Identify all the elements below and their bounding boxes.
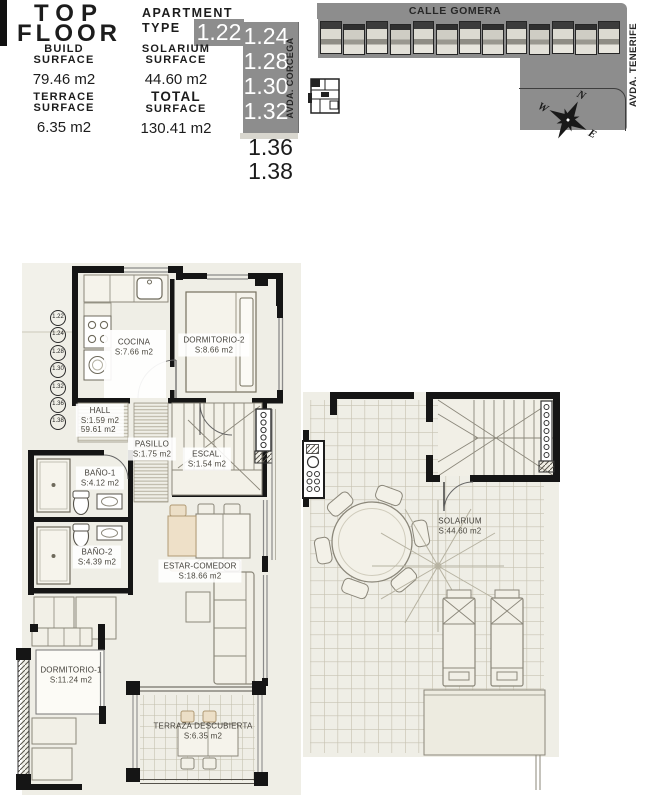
stat-solarium-surface: SOLARIUM SURFACE 44.60 m2 xyxy=(116,44,236,88)
unit-badge: 1.36 xyxy=(50,397,66,413)
room-label-solarium: SOLARIUM S:44.60 m2 xyxy=(438,517,481,536)
street-label-corcega: AVDA. CORCEGA xyxy=(285,24,296,132)
type-number-block: 1.22 xyxy=(194,19,244,46)
room-label-escalera: ESCAL. S:1.54 m2 xyxy=(183,448,231,471)
compass-n-label: N xyxy=(574,88,588,103)
room-label-estar-comedor: ESTAR-COMEDOR S:18.66 m2 xyxy=(158,560,241,583)
compass-e-label: E xyxy=(585,127,598,142)
site-house-unit xyxy=(413,21,435,54)
compass-rose: N E W xyxy=(531,80,605,154)
room-label-hall: HALL S:1.59 m2 59.61 m2 xyxy=(76,404,124,437)
site-house-unit xyxy=(506,21,528,54)
site-house-unit xyxy=(529,24,551,55)
site-house-unit xyxy=(575,24,597,55)
room-label-terraza: TERRAZA DESCUBIERTA S:6.35 m2 xyxy=(153,722,252,741)
site-house-unit xyxy=(366,21,388,54)
compass-w-label: W xyxy=(536,100,551,116)
site-house-unit xyxy=(343,24,365,55)
unit-badge: 1.38 xyxy=(50,414,66,430)
street-label-gomera: CALLE GOMERA xyxy=(317,3,627,19)
site-house-unit xyxy=(459,21,481,54)
key-plan-thumbnail xyxy=(308,73,346,121)
site-house-unit xyxy=(482,24,504,55)
stat-total-surface: TOTAL SURFACE 130.41 m2 xyxy=(116,90,236,137)
room-label-dormitorio-1: DORMITORIO-1 S:11.24 m2 xyxy=(40,666,101,685)
unit-badge: 1.30 xyxy=(50,362,66,378)
stat-terrace-surface: TERRACE SURFACE 6.35 m2 xyxy=(4,92,124,136)
site-house-unit xyxy=(390,24,412,55)
unit-badge: 1.28 xyxy=(50,345,66,361)
room-label-cocina: COCINA S:7.66 m2 xyxy=(115,338,153,357)
street-label-tenerife: AVDA. TENERIFE xyxy=(628,17,639,113)
site-house-unit xyxy=(320,21,342,54)
site-house-unit xyxy=(552,21,574,54)
unit-badge: 1.24 xyxy=(50,327,66,343)
floorplan-sheet: TOP FLOOR APARTMENT TYPE 1.22 1.24 1.28 … xyxy=(0,0,649,800)
site-house-unit xyxy=(436,24,458,55)
unit-badge: 1.22 xyxy=(50,310,66,326)
site-house-row xyxy=(318,19,622,58)
room-label-bano-1: BAÑO-1 S:4.12 m2 xyxy=(76,467,124,490)
site-house-unit xyxy=(598,21,620,54)
room-label-pasillo: PASILLO S:1.75 m2 xyxy=(128,438,176,461)
stat-build-surface: BUILD SURFACE 79.46 m2 xyxy=(4,44,124,88)
room-label-bano-2: BAÑO-2 S:4.39 m2 xyxy=(73,546,121,569)
page-title: TOP FLOOR xyxy=(5,4,133,44)
unit-badge: 1.32 xyxy=(50,380,66,396)
room-label-dormitorio-2: DORMITORIO-2 S:8.66 m2 xyxy=(178,334,249,357)
